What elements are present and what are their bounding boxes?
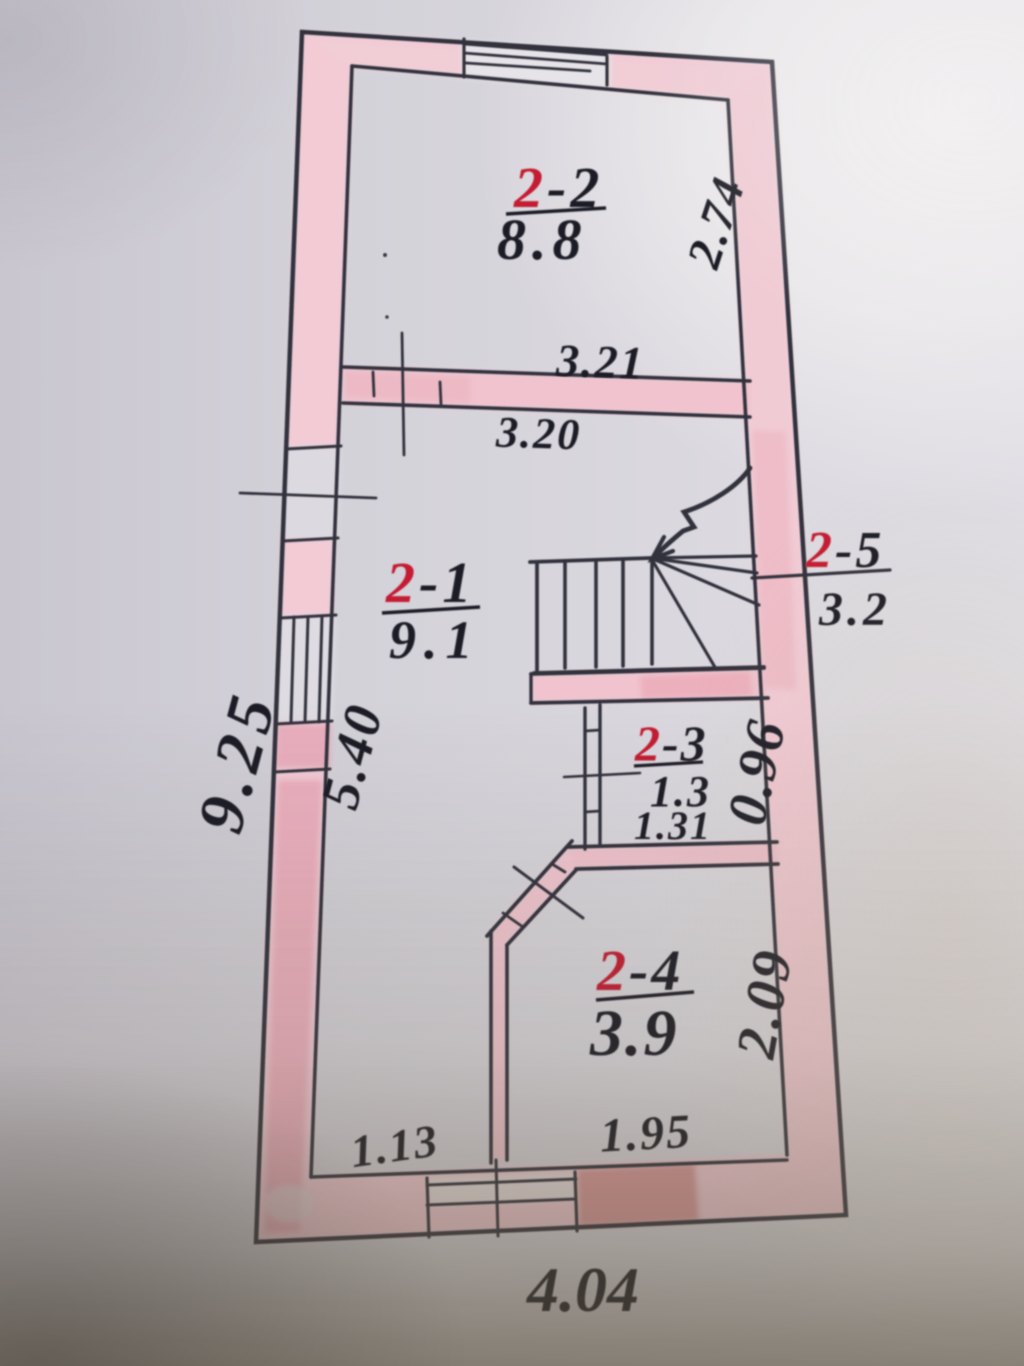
svg-text:8.8: 8.8	[497, 207, 588, 272]
svg-text:2-1: 2-1	[385, 550, 475, 615]
svg-text:9.1: 9.1	[389, 610, 481, 670]
svg-text:3.21: 3.21	[554, 334, 645, 388]
svg-text:3.20: 3.20	[494, 407, 582, 459]
